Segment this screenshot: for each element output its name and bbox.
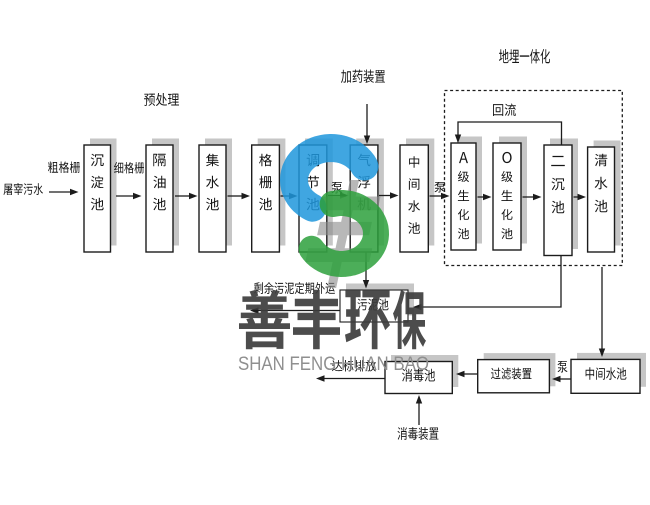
svg-text:SHAN FENG HUAN BAO: SHAN FENG HUAN BAO [238,354,429,375]
